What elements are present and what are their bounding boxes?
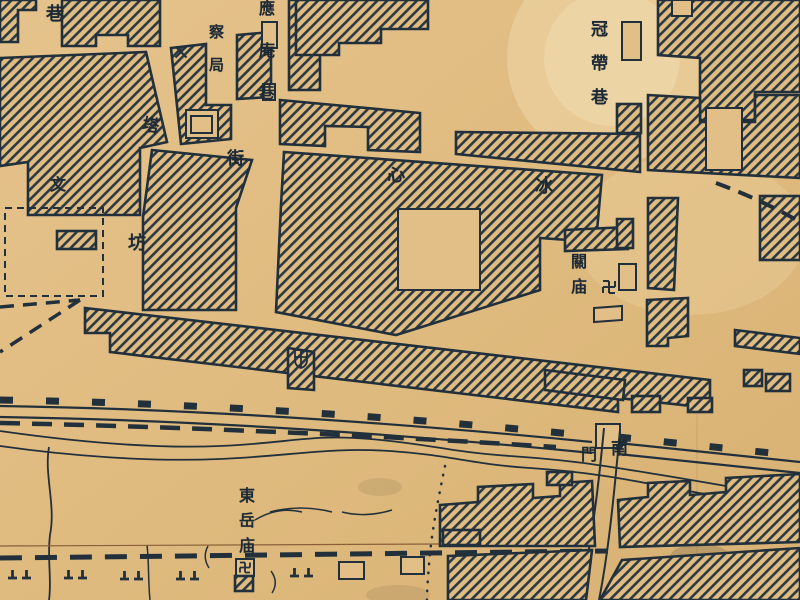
label-guan-temple: 關庙 [569,253,585,303]
label-dongyue-temple: 東岳庙 [237,487,253,562]
label-pagoda: 塔 [141,117,161,137]
map-drawing [0,0,800,600]
label-fang: 坊 [128,235,146,253]
label-bing: 冰 [535,178,553,196]
label-guandai-lane: 冠帶巷 [588,20,605,122]
label-wen: 文 [50,177,66,193]
historical-map: 巷 察局 塔 街 應庵巷 文 坊 心 冰 冠帶巷 關庙 東岳庙 南 門 [0,0,800,600]
label-south-gate-men: 門 [581,447,597,463]
label-lane-partial: 巷 [46,6,64,24]
label-south-gate-nan: 南 [611,441,628,458]
label-street: 街 [227,151,244,168]
label-xin: 心 [386,166,406,186]
label-police-bureau: 察局 [208,24,223,90]
label-yingan-lane: 應庵巷 [257,0,273,126]
